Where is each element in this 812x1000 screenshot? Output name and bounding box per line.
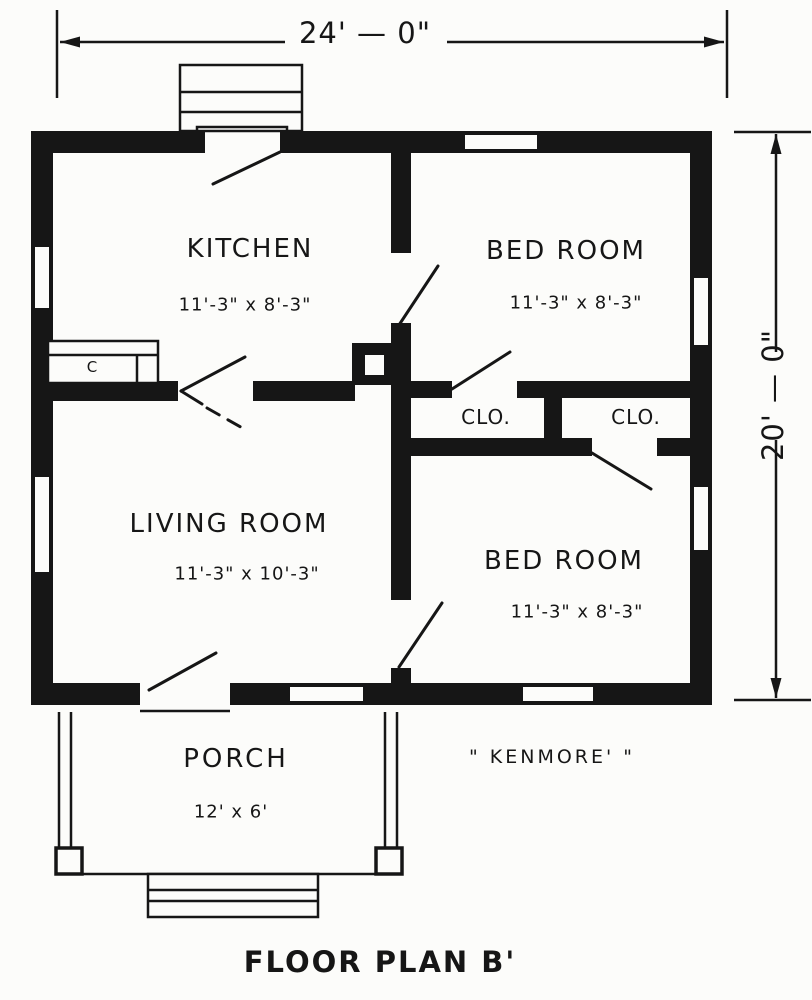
- floor-plan-drawing: [0, 0, 812, 1000]
- wall-closet-bottom-a: [391, 438, 592, 456]
- porch-post-left: [56, 848, 82, 874]
- opening-living-bedroom2: [391, 600, 411, 668]
- room-label-bedroom1: BED ROOM: [486, 236, 646, 266]
- room-label-kitchen: KITCHEN: [187, 234, 314, 264]
- room-size-bedroom2: 11'-3" x 8'-3": [511, 602, 644, 623]
- wall-closet-top-a: [411, 381, 452, 398]
- wall-closet-top-b: [517, 381, 690, 398]
- porch-post-right: [376, 848, 402, 874]
- room-size-living: 11'-3" x 10'-3": [174, 564, 319, 585]
- dimension-width-label: 24' — 0": [299, 16, 431, 50]
- window-bedroom1-top: [465, 135, 537, 149]
- swing-back-door: [213, 152, 280, 184]
- plan-title: FLOOR PLAN B': [244, 945, 517, 979]
- dim-top-arrow-right: [704, 37, 724, 48]
- opening-kitchen-living: [178, 381, 253, 401]
- kitchen-counter: [48, 341, 158, 383]
- opening-back-door: [205, 131, 280, 153]
- room-label-porch: PORCH: [183, 744, 289, 774]
- window-living-bottom: [290, 687, 363, 701]
- window-living-left: [35, 477, 49, 572]
- wall-kitchen-living-2: [253, 381, 355, 401]
- room-label-living: LIVING ROOM: [130, 509, 329, 539]
- back-steps-outline: [180, 65, 302, 131]
- swing-kitchen-door-dashed: [207, 408, 246, 430]
- wall-divider-stub: [391, 668, 411, 690]
- window-bedroom1-right: [694, 278, 708, 345]
- wall-right: [690, 131, 712, 705]
- window-bedroom2-right: [694, 487, 708, 550]
- chimney-flue: [365, 355, 384, 375]
- floor-plan-sheet: 24' — 0" 20' — 0" KITCHEN 11'-3" x 8'-3"…: [0, 0, 812, 1000]
- counter-outline: [48, 341, 158, 383]
- room-size-bedroom1: 11'-3" x 8'-3": [510, 293, 643, 314]
- house-name-label: " KENMORE' ": [469, 746, 635, 768]
- dimension-depth-label: 20' — 0": [756, 329, 790, 461]
- wall-top: [31, 131, 712, 153]
- room-size-kitchen: 11'-3" x 8'-3": [179, 295, 312, 316]
- closet-label-left: CLO.: [461, 405, 511, 429]
- front-steps: [148, 874, 318, 917]
- opening-closet-right: [592, 438, 657, 456]
- swing-closet-right-door: [592, 453, 651, 489]
- back-steps: [180, 65, 302, 131]
- dim-top-arrow-left: [60, 37, 80, 48]
- room-label-bedroom2: BED ROOM: [484, 546, 644, 576]
- wall-bottom: [31, 683, 712, 705]
- window-kitchen-left: [35, 247, 49, 308]
- wall-left: [31, 131, 53, 705]
- dim-right-arrow-top: [771, 134, 782, 154]
- counter-label: C: [87, 358, 97, 376]
- wall-divider-upper: [391, 147, 411, 253]
- closet-label-right: CLO.: [611, 405, 661, 429]
- chimney: [352, 343, 411, 385]
- window-bedroom2-bottom: [523, 687, 593, 701]
- room-size-porch: 12' x 6': [194, 802, 268, 823]
- front-steps-outline: [148, 874, 318, 917]
- dim-right-arrow-bottom: [771, 678, 782, 698]
- wall-closet-bottom-b: [657, 438, 690, 456]
- porch-structure: [56, 711, 402, 874]
